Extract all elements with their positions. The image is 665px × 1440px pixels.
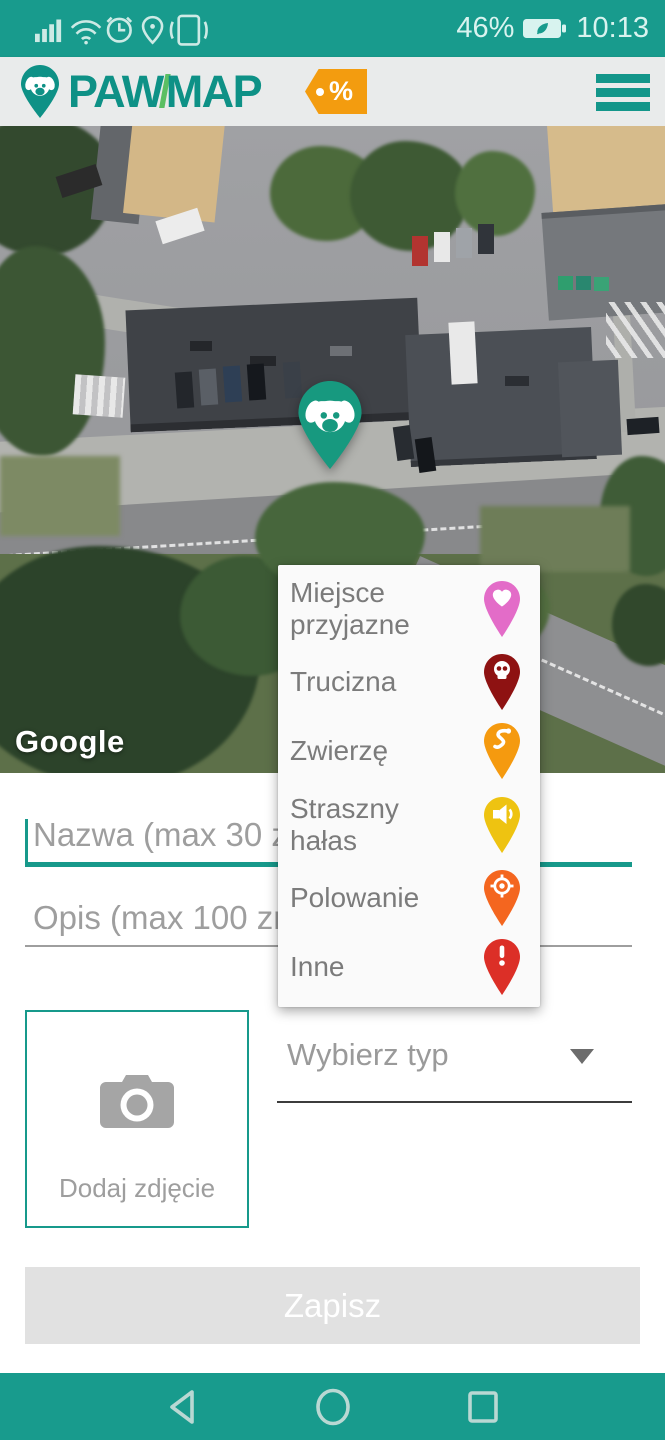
logo-dog-pin-icon (20, 65, 60, 118)
alarm-icon (107, 17, 131, 41)
snake-pin-icon (484, 723, 520, 779)
promo-tag-button[interactable]: % (305, 69, 367, 114)
pawmap-logo: PAW/MAP (20, 65, 261, 118)
add-photo-button[interactable]: Dodaj zdjęcie (25, 1010, 249, 1228)
location-icon (143, 17, 162, 43)
tag-hole (316, 88, 324, 96)
recents-button[interactable] (465, 1388, 501, 1426)
clock-time: 10:13 (576, 12, 649, 45)
google-watermark: Google (15, 724, 125, 760)
exclamation-pin-icon (484, 939, 520, 995)
battery-percent: 46% (456, 12, 514, 45)
back-triangle-icon (172, 1392, 192, 1422)
save-button[interactable]: Zapisz (25, 1267, 640, 1344)
target-pin-icon (484, 870, 520, 926)
menu-item-polowanie[interactable]: Polowanie (278, 870, 540, 926)
brand-name: PAW/MAP (68, 66, 261, 118)
home-button[interactable] (313, 1386, 353, 1428)
menu-item-trucizna[interactable]: Trucizna (278, 654, 540, 710)
camera-icon (98, 1070, 176, 1132)
battery-leaf-icon (522, 16, 568, 42)
signal-icon (35, 19, 61, 42)
chevron-down-icon (570, 1049, 594, 1064)
status-icons (34, 10, 226, 48)
recents-square-icon (470, 1393, 496, 1421)
pawmap-app-screen: 46% 10:13 (0, 0, 665, 1440)
back-button[interactable] (165, 1387, 201, 1427)
percent-label: % (329, 76, 353, 107)
menu-item-zwierze[interactable]: Zwierzę (278, 723, 540, 779)
menu-item-straszny-halas[interactable]: Straszny hałas (278, 793, 540, 857)
type-select-value: Wybierz typ (287, 1037, 449, 1073)
add-photo-label: Dodaj zdjęcie (59, 1173, 215, 1204)
app-header: PAW/MAP % (0, 57, 665, 126)
wifi-icon (72, 21, 101, 44)
vibrate-icon (171, 15, 207, 44)
home-circle-icon (318, 1390, 348, 1423)
text-cursor (25, 819, 28, 865)
skull-pin-icon (484, 654, 520, 710)
type-dropdown-menu: Miejsce przyjazne Trucizna Zwierzę (278, 565, 540, 1007)
status-bar: 46% 10:13 (0, 0, 665, 57)
heart-pin-icon (484, 581, 520, 637)
menu-item-miejsce-przyjazne[interactable]: Miejsce przyjazne (278, 577, 540, 641)
android-nav-bar (0, 1373, 665, 1440)
speaker-pin-icon (484, 797, 520, 853)
dog-pin-marker[interactable] (297, 381, 363, 469)
menu-item-inne[interactable]: Inne (278, 939, 540, 995)
type-select[interactable]: Wybierz typ (277, 1031, 632, 1103)
menu-icon[interactable] (596, 74, 650, 111)
